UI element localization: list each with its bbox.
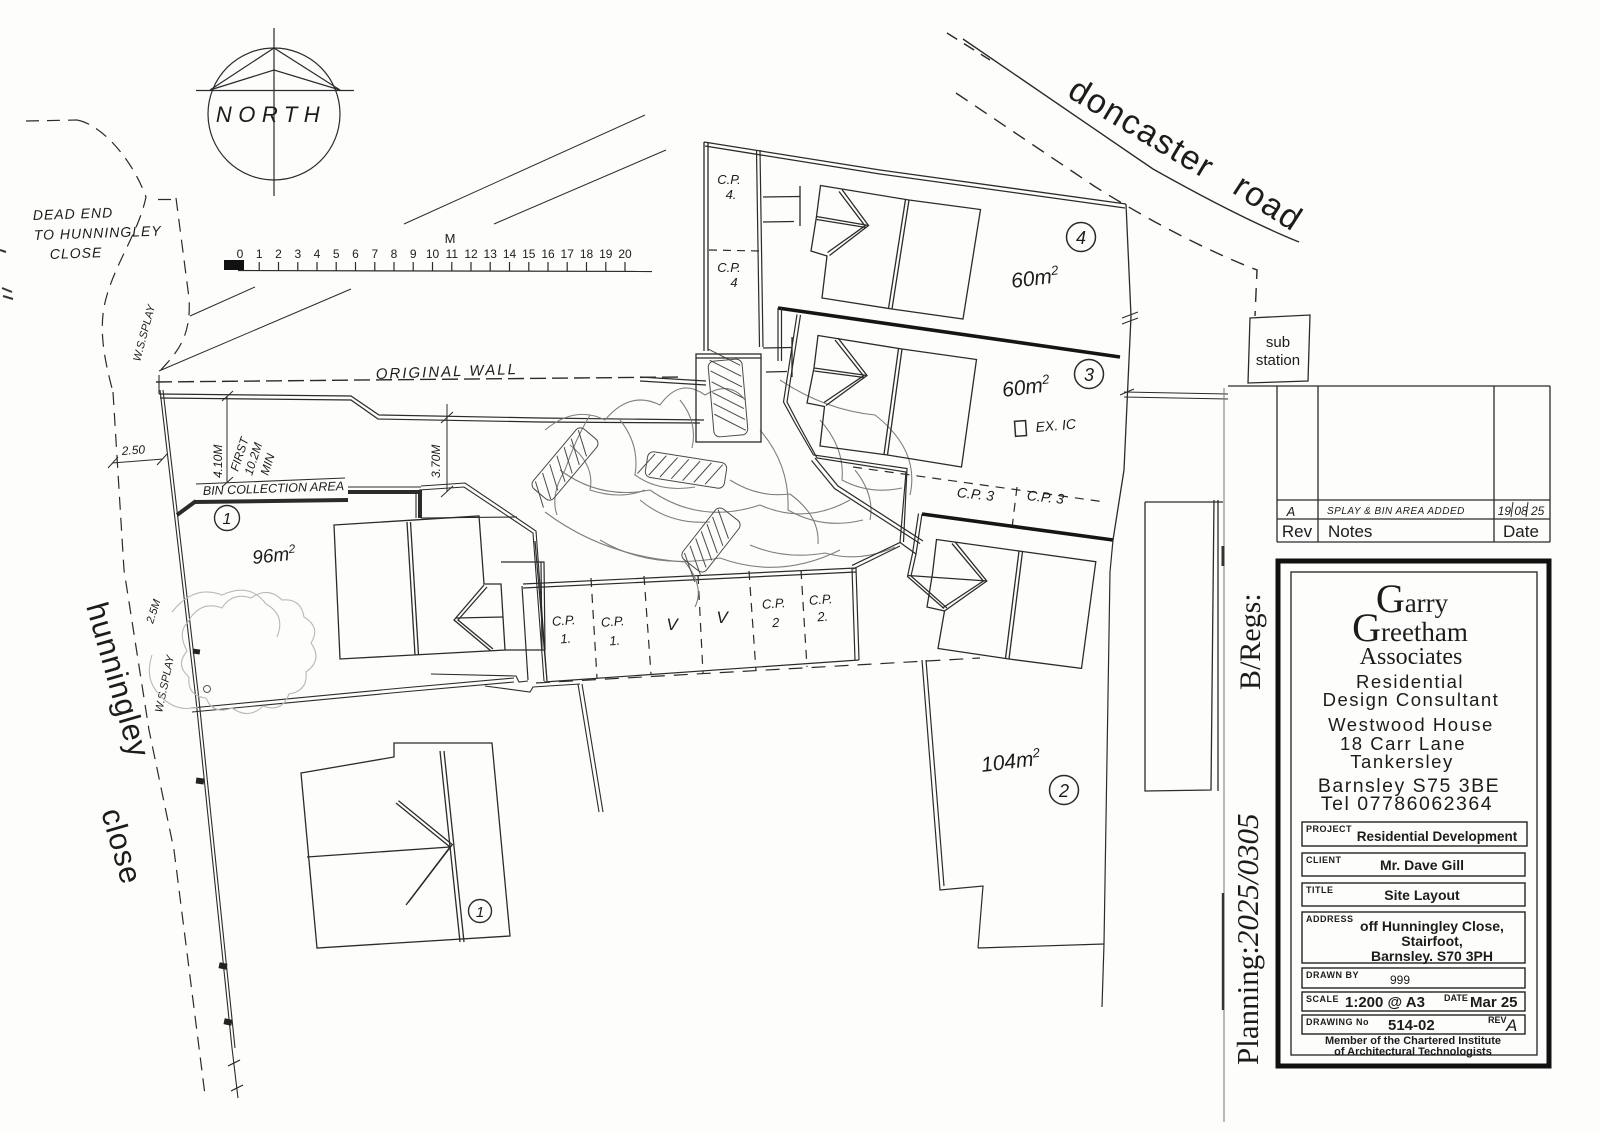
svg-text:DEAD END: DEAD END (33, 204, 114, 223)
svg-text:Rev: Rev (1282, 522, 1313, 541)
svg-text:3: 3 (294, 247, 301, 261)
svg-text:4: 4 (314, 247, 321, 261)
svg-text:Residential Development: Residential Development (1357, 829, 1518, 844)
svg-text:5: 5 (333, 247, 340, 261)
svg-text:DRAWING No: DRAWING No (1306, 1017, 1369, 1027)
svg-text:CLOSE: CLOSE (50, 244, 103, 262)
svg-text:NORTH: NORTH (216, 102, 326, 127)
svg-text:6: 6 (352, 247, 359, 261)
svg-text:V: V (666, 615, 679, 634)
svg-text:C.P.: C.P. (717, 260, 741, 275)
svg-text:B/Regs:: B/Regs: (1234, 593, 1267, 690)
svg-text:ADDRESS: ADDRESS (1306, 914, 1354, 924)
svg-text:C.P.: C.P. (808, 591, 833, 608)
svg-text:13: 13 (484, 247, 498, 261)
svg-text:Barnsley. S70 3PH: Barnsley. S70 3PH (1371, 948, 1493, 964)
svg-text:C.P.: C.P. (600, 613, 625, 630)
svg-text:C.P.: C.P. (761, 595, 786, 612)
svg-text:514-02: 514-02 (1388, 1017, 1435, 1034)
svg-text:TITLE: TITLE (1306, 885, 1334, 895)
svg-text:4: 4 (1076, 228, 1086, 248)
svg-text:Tel 07786062364: Tel 07786062364 (1321, 793, 1493, 815)
svg-text:17: 17 (561, 247, 575, 261)
svg-text:2: 2 (275, 247, 282, 261)
svg-text:2: 2 (1058, 781, 1069, 801)
svg-text:7: 7 (371, 247, 378, 261)
svg-text:station: station (1256, 352, 1300, 369)
svg-text:1.: 1. (609, 633, 621, 649)
svg-text:3.70M: 3.70M (429, 445, 443, 478)
svg-text:20: 20 (618, 247, 632, 261)
svg-text:19: 19 (599, 247, 613, 261)
svg-text:of Architectural Technologis: of Architectural Technologists (1334, 1046, 1492, 1058)
svg-text:4.10M: 4.10M (211, 445, 225, 478)
svg-text:DRAWN BY: DRAWN BY (1306, 970, 1359, 980)
svg-text:999: 999 (1390, 973, 1410, 987)
svg-text:Design Consultant: Design Consultant (1323, 689, 1500, 710)
svg-text:15: 15 (522, 247, 536, 261)
svg-text:Associates: Associates (1360, 644, 1463, 670)
svg-text:A: A (1286, 504, 1296, 519)
svg-text:1.: 1. (560, 631, 572, 647)
svg-text:M: M (445, 231, 456, 246)
svg-text:Planning:2025/0305: Planning:2025/0305 (1230, 814, 1265, 1065)
svg-text:2.: 2. (816, 609, 829, 625)
svg-text:Tankersley: Tankersley (1350, 751, 1453, 772)
svg-text:SCALE: SCALE (1306, 994, 1339, 1004)
svg-text:C.P.: C.P. (551, 612, 576, 629)
svg-text:0: 0 (237, 247, 244, 261)
svg-text:Site Layout: Site Layout (1384, 887, 1460, 903)
svg-text:off Hunningley Close,: off Hunningley Close, (1360, 918, 1504, 934)
svg-text:1: 1 (476, 904, 484, 921)
svg-text:C.P.: C.P. (717, 172, 741, 187)
svg-text:DATE: DATE (1444, 993, 1468, 1003)
svg-text:4: 4 (730, 275, 737, 290)
svg-text:Date: Date (1503, 522, 1539, 541)
svg-text:12: 12 (464, 247, 478, 261)
svg-text:REV: REV (1488, 1015, 1507, 1025)
svg-text:sub: sub (1266, 334, 1290, 351)
svg-text:Westwood House: Westwood House (1328, 714, 1494, 735)
svg-text:A: A (1505, 1016, 1517, 1035)
svg-text:Mar 25: Mar 25 (1470, 994, 1518, 1011)
svg-text:CLIENT: CLIENT (1306, 855, 1342, 865)
svg-text:10: 10 (426, 247, 440, 261)
svg-text:19 08 25: 19 08 25 (1498, 504, 1545, 518)
svg-text:8: 8 (391, 247, 398, 261)
svg-text:16: 16 (541, 247, 555, 261)
svg-text:18: 18 (580, 247, 594, 261)
svg-text:1:200 @ A3: 1:200 @ A3 (1345, 994, 1425, 1011)
svg-text:4.: 4. (726, 187, 737, 202)
svg-text:V: V (716, 608, 729, 627)
svg-text:Stairfoot,: Stairfoot, (1401, 933, 1462, 949)
svg-text:1: 1 (223, 511, 232, 528)
svg-text:14: 14 (503, 247, 517, 261)
svg-text:3: 3 (1084, 365, 1094, 385)
svg-text:Mr. Dave Gill: Mr. Dave Gill (1380, 857, 1464, 873)
svg-text:11: 11 (446, 247, 459, 261)
svg-text:SPLAY & BIN AREA ADDED: SPLAY & BIN AREA ADDED (1327, 506, 1465, 517)
svg-text:PROJECT: PROJECT (1306, 824, 1352, 834)
svg-text:Notes: Notes (1328, 522, 1372, 541)
svg-text:2.50: 2.50 (120, 442, 146, 458)
svg-text:9: 9 (410, 247, 417, 261)
svg-text:1: 1 (256, 247, 263, 261)
